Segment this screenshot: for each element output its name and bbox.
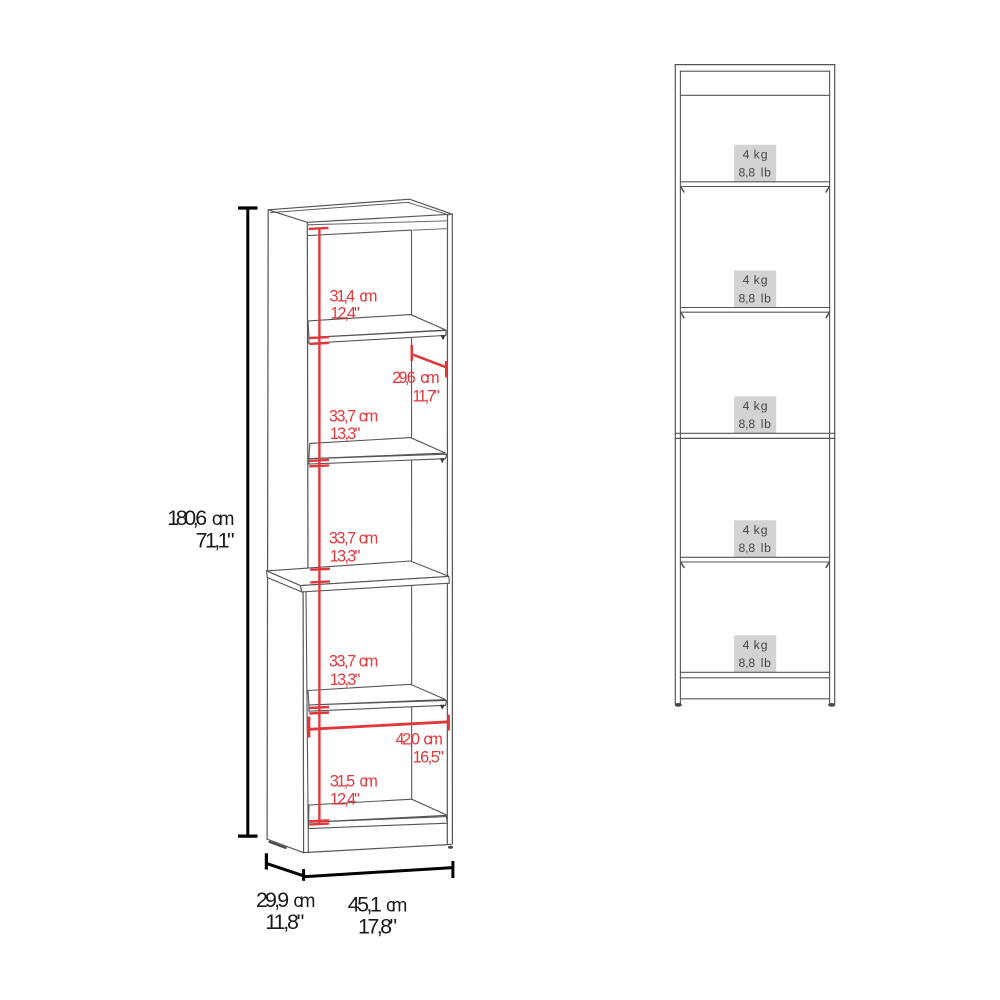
svg-text:4kg: 4kg xyxy=(743,147,768,161)
svg-text:33,7cm: 33,7cm xyxy=(329,653,378,671)
svg-text:29,9cm: 29,9cm xyxy=(256,888,316,912)
svg-text:11,8": 11,8" xyxy=(265,910,304,934)
svg-text:8,8lb: 8,8lb xyxy=(739,166,772,180)
svg-text:33,7cm: 33,7cm xyxy=(329,530,378,548)
svg-text:4kg: 4kg xyxy=(743,399,768,413)
svg-text:8,8lb: 8,8lb xyxy=(739,417,772,431)
svg-text:33,7cm: 33,7cm xyxy=(329,407,378,425)
svg-text:31,4cm: 31,4cm xyxy=(330,288,378,306)
svg-text:11,7": 11,7" xyxy=(412,388,439,406)
svg-text:180,6cm: 180,6cm xyxy=(167,506,234,530)
svg-text:45,1cm: 45,1cm xyxy=(348,892,408,916)
svg-text:13,3": 13,3" xyxy=(330,548,361,566)
svg-text:12,4": 12,4" xyxy=(330,305,360,323)
svg-text:8,8lb: 8,8lb xyxy=(739,656,772,670)
svg-text:4kg: 4kg xyxy=(743,523,768,537)
svg-text:31,5cm: 31,5cm xyxy=(330,773,378,791)
svg-text:16,5": 16,5" xyxy=(413,749,445,767)
svg-text:4kg: 4kg xyxy=(743,273,768,287)
svg-text:8,8lb: 8,8lb xyxy=(739,541,772,555)
svg-text:42,0cm: 42,0cm xyxy=(396,731,443,749)
svg-text:4kg: 4kg xyxy=(743,638,768,652)
svg-text:17,8": 17,8" xyxy=(358,915,397,939)
svg-text:13,3": 13,3" xyxy=(330,425,361,443)
svg-text:8,8lb: 8,8lb xyxy=(739,291,772,305)
svg-text:12,4": 12,4" xyxy=(330,791,360,809)
svg-text:71,1": 71,1" xyxy=(196,529,235,553)
svg-text:13,3": 13,3" xyxy=(330,671,361,689)
